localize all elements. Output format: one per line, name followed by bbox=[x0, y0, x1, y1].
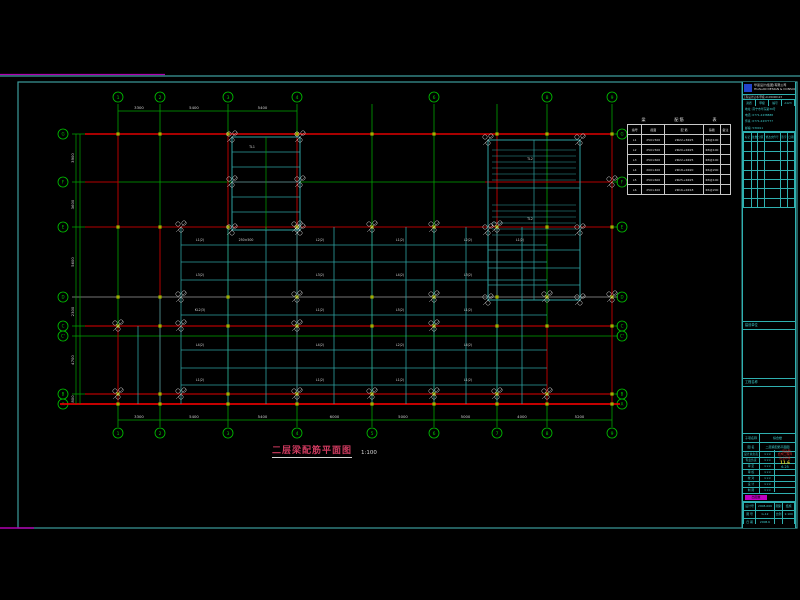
axis-bubble-label: 6 bbox=[433, 95, 436, 101]
revision-cell bbox=[787, 189, 794, 198]
project-label: 工程名称 bbox=[743, 379, 795, 387]
schedule-row: L5250×6002Φ25+4Φ25Φ8@100 bbox=[628, 175, 731, 185]
tb-signature-section: 子项名称综合楼图 名二层梁配筋平面图设计总负责×××专业负责×××审 定×××审… bbox=[743, 434, 795, 502]
tb-bottom-row: 图 号G-12比例1:100 bbox=[744, 510, 795, 518]
column-mark bbox=[610, 225, 613, 228]
axis-bubble-label: 2 bbox=[159, 431, 162, 437]
rebar-callout-circle bbox=[176, 321, 180, 325]
rebar-callout-circle bbox=[298, 291, 302, 295]
schedule-cell: 2Φ18+2Φ20 bbox=[665, 165, 704, 175]
rebar-callout-circle bbox=[581, 294, 585, 298]
schedule-cell: 250×600 bbox=[642, 175, 665, 185]
revision-cell bbox=[787, 142, 794, 151]
drawing-title-text: 二层梁配筋平面图 bbox=[272, 443, 352, 458]
schedule-title-part: 配 筋 bbox=[674, 117, 683, 122]
schedule-cell: L3 bbox=[628, 155, 642, 165]
schedule-body: 编号截面配 筋箍筋备注L1250×5002Φ22+3Φ25Φ8@100L2250… bbox=[628, 125, 731, 195]
schedule-cell: 200×400 bbox=[642, 165, 665, 175]
rebar-callout-circle bbox=[613, 176, 617, 180]
revision-cell bbox=[764, 179, 780, 188]
revision-cell bbox=[744, 189, 752, 198]
schedule-header-cell: 编号 bbox=[628, 125, 642, 135]
rebar-callout-circle bbox=[498, 388, 502, 392]
rebar-callout-circle bbox=[113, 321, 117, 325]
tb-revision-section: 标记处数分区修改文件号签字日期 bbox=[743, 132, 795, 208]
revision-cell bbox=[787, 179, 794, 188]
dim-text-left: 3600 bbox=[70, 199, 75, 209]
revision-cell bbox=[787, 161, 794, 170]
column-mark bbox=[495, 132, 498, 135]
schedule-row: L1250×5002Φ22+3Φ25Φ8@100 bbox=[628, 135, 731, 145]
revision-cell bbox=[744, 179, 752, 188]
column-mark bbox=[116, 402, 119, 405]
column-mark bbox=[545, 132, 548, 135]
axis-bubble-label: 2 bbox=[159, 95, 162, 101]
rebar-callout-circle bbox=[176, 292, 180, 296]
revision-cell bbox=[744, 142, 752, 151]
column-mark bbox=[370, 132, 373, 135]
revision-row bbox=[744, 151, 795, 160]
dim-text-bottom: 5000 bbox=[398, 414, 408, 419]
axis-bubble-label: B bbox=[62, 392, 65, 397]
column-mark bbox=[370, 295, 373, 298]
stamp-cyan-number: 6.25 bbox=[775, 465, 795, 469]
schedule-header-cell: 备注 bbox=[720, 125, 730, 135]
schedule-header-cell: 箍筋 bbox=[704, 125, 720, 135]
rebar-callout-circle bbox=[119, 388, 123, 392]
beam-tag: L1(2) bbox=[516, 238, 524, 242]
schedule-cell: 2Φ20+2Φ25 bbox=[665, 145, 704, 155]
schedule-cell bbox=[720, 145, 730, 155]
sub-row-label: 子项名称 bbox=[743, 434, 760, 442]
cad-viewport: 1122334456678899GGFFEEDDCCC'C'BBAAL1(2)2… bbox=[0, 0, 800, 600]
tb-bottom-cell bbox=[774, 518, 782, 524]
schedule-cell: 2Φ22+3Φ25 bbox=[665, 135, 704, 145]
name-row-label: 审 定 bbox=[743, 464, 760, 469]
column-mark bbox=[226, 392, 229, 395]
rebar-callout-circle bbox=[367, 222, 371, 226]
tb-bottom-cell: 1:100 bbox=[783, 510, 795, 518]
axis-bubble-label: 5 bbox=[371, 431, 374, 437]
column-mark bbox=[610, 132, 613, 135]
name-row-value: ××× bbox=[760, 482, 775, 487]
tb-stamp-box bbox=[743, 208, 795, 322]
schedule-cell: Φ8@100 bbox=[704, 155, 720, 165]
tb-bottom-row: 设计号2008-069图别结施 bbox=[744, 503, 795, 511]
tb-bottom-cell: 设计号 bbox=[744, 503, 756, 511]
schedule-row: L2250×5002Φ20+2Φ25Φ8@100 bbox=[628, 145, 731, 155]
rebar-callout-circle bbox=[119, 320, 123, 324]
axis-bubble-label: D bbox=[620, 295, 623, 300]
schedule-row: L3250×6002Φ22+4Φ25Φ8@100 bbox=[628, 155, 731, 165]
column-mark bbox=[610, 392, 613, 395]
beam-tag: TL2 bbox=[526, 217, 533, 221]
column-mark bbox=[158, 324, 161, 327]
name-row-value: ××× bbox=[760, 458, 775, 463]
revision-cell bbox=[764, 198, 780, 207]
axis-bubble-label: C' bbox=[61, 334, 65, 339]
revision-header-row: 标记处数分区修改文件号签字日期 bbox=[744, 133, 795, 142]
beam-tag: L2(2) bbox=[464, 238, 472, 242]
dim-text-bottom: 6000 bbox=[330, 414, 340, 419]
name-row-label: 审 核 bbox=[743, 470, 760, 475]
tb-bottom-row: 日 期2008.6 bbox=[744, 518, 795, 524]
column-mark bbox=[432, 132, 435, 135]
column-mark bbox=[495, 295, 498, 298]
axis-bubble-label: C bbox=[621, 324, 624, 329]
axis-bubble-label: B bbox=[621, 392, 624, 397]
schedule-cell: 250×600 bbox=[642, 155, 665, 165]
schedule-title: 梁配 筋表 bbox=[627, 117, 731, 122]
axis-bubble-label: 6 bbox=[433, 431, 436, 437]
rebar-callout-circle bbox=[548, 388, 552, 392]
rebar-callout-circle bbox=[542, 389, 546, 393]
axis-bubble-label: D bbox=[61, 295, 64, 300]
tb-project-section: 工程名称 bbox=[743, 379, 795, 434]
column-mark bbox=[545, 324, 548, 327]
axis-bubble-label: C bbox=[62, 324, 65, 329]
schedule-cell: 250×500 bbox=[642, 135, 665, 145]
column-mark bbox=[116, 225, 119, 228]
rebar-callout-circle bbox=[233, 176, 237, 180]
axis-bubble-label: 4 bbox=[296, 95, 299, 101]
revision-table-body: 标记处数分区修改文件号签字日期 bbox=[744, 133, 795, 208]
rebar-callout-circle bbox=[435, 291, 439, 295]
beam-tag: L1(2) bbox=[316, 378, 324, 382]
axis-bubble-label: 9 bbox=[611, 95, 614, 101]
rebar-callout-circle bbox=[373, 388, 377, 392]
revision-cell bbox=[764, 151, 780, 160]
revision-cell bbox=[780, 198, 787, 207]
name-row-value: ××× bbox=[760, 476, 775, 481]
beam-tag: L4(2) bbox=[396, 273, 404, 277]
tb-cell: A123 bbox=[782, 100, 795, 106]
rebar-callout-circle bbox=[292, 389, 296, 393]
dim-text-top: 5400 bbox=[189, 105, 199, 110]
axis-bubble-label: E bbox=[62, 225, 65, 230]
revision-row bbox=[744, 161, 795, 170]
column-mark bbox=[226, 324, 229, 327]
beam-schedule-table: 梁配 筋表 编号截面配 筋箍筋备注L1250×5002Φ22+3Φ25Φ8@10… bbox=[627, 117, 731, 195]
dim-text-left: 800 bbox=[70, 395, 75, 403]
rebar-callout-circle bbox=[489, 294, 493, 298]
sub-row-label: 图 名 bbox=[743, 443, 760, 451]
tb-logo-section: 华蓝设计(集团)有限公司HUALAN DESIGN & CONSULTING G… bbox=[743, 82, 795, 95]
rebar-callout-circle bbox=[548, 291, 552, 295]
column-mark bbox=[610, 324, 613, 327]
schedule-cell: L5 bbox=[628, 175, 642, 185]
revision-cell bbox=[764, 170, 780, 179]
axis-bubble-label: 8 bbox=[546, 431, 549, 437]
dim-text-bottom: 5400 bbox=[189, 414, 199, 419]
axis-bubble-label: 1 bbox=[117, 95, 120, 101]
company-logo-icon bbox=[744, 84, 752, 92]
name-row-value: ××× bbox=[760, 470, 775, 475]
rebar-callout-circle bbox=[575, 135, 579, 139]
name-row-value: ××× bbox=[760, 452, 775, 457]
tb-bottom-cell: 比例 bbox=[774, 510, 782, 518]
beam-tag: L1(2) bbox=[396, 238, 404, 242]
column-mark bbox=[295, 132, 298, 135]
name-row-label: 校 对 bbox=[743, 476, 760, 481]
rebar-callout-circle bbox=[435, 388, 439, 392]
tb-stamp-column: 一级注册结构工程师执业印章11.66.25 bbox=[774, 450, 795, 492]
drawing-title: 二层梁配筋平面图 1:100 bbox=[272, 443, 377, 458]
schedule-cell: L1 bbox=[628, 135, 642, 145]
column-mark bbox=[116, 132, 119, 135]
beam-tag: L2(2) bbox=[396, 343, 404, 347]
schedule-cell: Φ8@100 bbox=[704, 135, 720, 145]
schedule-cell: Φ8@100 bbox=[704, 175, 720, 185]
column-mark bbox=[158, 132, 161, 135]
tb-bottom-cell: 结施 bbox=[783, 503, 795, 511]
column-mark bbox=[370, 324, 373, 327]
column-mark bbox=[158, 295, 161, 298]
axis-bubble-label: F bbox=[621, 180, 624, 185]
rebar-callout-circle bbox=[182, 388, 186, 392]
drawing-scale: 1:100 bbox=[361, 450, 377, 458]
axis-bubble-label: 9 bbox=[611, 431, 614, 437]
axis-bubble-label: E bbox=[621, 225, 624, 230]
axis-bubble-label: 3 bbox=[227, 95, 230, 101]
rebar-callout-circle bbox=[301, 176, 305, 180]
rebar-callout-circle bbox=[483, 135, 487, 139]
rebar-callout-circle bbox=[429, 321, 433, 325]
schedule-cell: Φ6@200 bbox=[704, 185, 720, 195]
column-mark bbox=[495, 402, 498, 405]
dim-text-top: 5400 bbox=[258, 105, 268, 110]
schedule-cell: Φ6@200 bbox=[704, 165, 720, 175]
address-line: 邮编: 530011 bbox=[743, 125, 795, 131]
beam-tag: L3(2) bbox=[196, 273, 204, 277]
rebar-callout-circle bbox=[182, 320, 186, 324]
beam-tag: 250×500 bbox=[239, 238, 254, 242]
sub-row: 子项名称综合楼 bbox=[743, 434, 795, 443]
revision-cell bbox=[764, 189, 780, 198]
beam-tag: L4(2) bbox=[316, 343, 324, 347]
column-mark bbox=[432, 402, 435, 405]
dim-text-bottom: 5200 bbox=[575, 414, 585, 419]
revision-cell bbox=[744, 170, 752, 179]
revision-header-cell: 签字 bbox=[780, 133, 787, 142]
axis-bubble-label: G bbox=[620, 132, 623, 137]
column-mark bbox=[545, 225, 548, 228]
beam-tag: TL1 bbox=[248, 145, 255, 149]
revision-cell bbox=[787, 151, 794, 160]
schedule-cell bbox=[720, 155, 730, 165]
axis-bubble-label: 1 bbox=[117, 431, 120, 437]
schedule-cell bbox=[720, 165, 730, 175]
revision-cell bbox=[780, 142, 787, 151]
revision-row bbox=[744, 189, 795, 198]
axis-bubble-label: 7 bbox=[496, 431, 499, 437]
schedule-header-cell: 截面 bbox=[642, 125, 665, 135]
schedule-cell: 2Φ22+4Φ25 bbox=[665, 155, 704, 165]
axis-bubble-label: A bbox=[621, 402, 624, 407]
column-mark bbox=[158, 402, 161, 405]
rebar-callout-circle bbox=[429, 292, 433, 296]
tb-bottom-cell: G-12 bbox=[756, 510, 775, 518]
rebar-callout-circle bbox=[227, 177, 231, 181]
plot-stamp-cell: 出图章 bbox=[745, 495, 767, 500]
beam-tag: L5(2) bbox=[396, 308, 404, 312]
axis-bubble-label: 8 bbox=[546, 95, 549, 101]
axis-bubble-label: C' bbox=[620, 334, 624, 339]
beam-tag: L1(2) bbox=[396, 378, 404, 382]
beam-tag: TL2 bbox=[526, 157, 533, 161]
cad-canvas[interactable]: 1122334456678899GGFFEEDDCCC'C'BBAAL1(2)2… bbox=[0, 0, 800, 600]
rebar-callout-circle bbox=[435, 221, 439, 225]
beam-tag: L1(2) bbox=[196, 238, 204, 242]
dim-text-top: 3300 bbox=[134, 105, 144, 110]
tb-bottom-cell: 图 号 bbox=[744, 510, 756, 518]
rebar-callout-circle bbox=[613, 291, 617, 295]
name-row-label: 制 图 bbox=[743, 488, 760, 493]
rebar-callout-circle bbox=[429, 222, 433, 226]
rebar-callout-circle bbox=[233, 224, 237, 228]
rebar-callout-circle bbox=[489, 224, 493, 228]
schedule-cell: 250×500 bbox=[642, 145, 665, 155]
rebar-callout-circle bbox=[607, 292, 611, 296]
schedule-grid: 编号截面配 筋箍筋备注L1250×5002Φ22+3Φ25Φ8@100L2250… bbox=[627, 124, 731, 195]
tb-owner-section: 建设单位 bbox=[743, 322, 795, 379]
revision-cell bbox=[764, 161, 780, 170]
name-row-value: ××× bbox=[760, 488, 775, 493]
rebar-callout-circle bbox=[581, 224, 585, 228]
revision-cell bbox=[764, 142, 780, 151]
rebar-callout-circle bbox=[292, 292, 296, 296]
axis-bubble-label: F bbox=[62, 180, 65, 185]
revision-row bbox=[744, 179, 795, 188]
tb-bottom-table: 设计号2008-069图别结施图 号G-12比例1:100日 期2008.6 bbox=[743, 502, 795, 524]
column-mark bbox=[158, 225, 161, 228]
schedule-cell: L6 bbox=[628, 185, 642, 195]
revision-cell bbox=[744, 151, 752, 160]
column-mark bbox=[610, 402, 613, 405]
tb-bottom-cell: 日 期 bbox=[744, 518, 756, 524]
rebar-callout-circle bbox=[292, 222, 296, 226]
revision-header-cell: 日期 bbox=[787, 133, 794, 142]
revision-cell bbox=[787, 170, 794, 179]
name-row-label: 设 计 bbox=[743, 482, 760, 487]
revision-cell bbox=[744, 161, 752, 170]
schedule-cell bbox=[720, 175, 730, 185]
revision-cell bbox=[744, 198, 752, 207]
rebar-callout-circle bbox=[367, 389, 371, 393]
tb-bottom-cell: 2008.6 bbox=[756, 518, 775, 524]
rebar-callout-circle bbox=[429, 389, 433, 393]
dim-text-left: 5600 bbox=[70, 257, 75, 267]
schedule-cell: 2Φ25+4Φ25 bbox=[665, 175, 704, 185]
name-row-value: ××× bbox=[760, 464, 775, 469]
column-mark bbox=[495, 324, 498, 327]
schedule-cell: 250×400 bbox=[642, 185, 665, 195]
rebar-callout-circle bbox=[113, 389, 117, 393]
revision-row bbox=[744, 198, 795, 207]
axis-bubble-label: 3 bbox=[227, 431, 230, 437]
rebar-callout-circle bbox=[298, 320, 302, 324]
schedule-title-part: 表 bbox=[713, 117, 717, 122]
revision-cell bbox=[780, 151, 787, 160]
dim-text-bottom: 5000 bbox=[461, 414, 471, 419]
name-row-label: 设计总负责 bbox=[743, 452, 760, 457]
beam-tag: L1(2) bbox=[464, 378, 472, 382]
schedule-row: L6250×4002Φ16+2Φ18Φ6@200 bbox=[628, 185, 731, 195]
beam-tag: L2(2) bbox=[316, 238, 324, 242]
schedule-row: L4200×4002Φ18+2Φ20Φ6@200 bbox=[628, 165, 731, 175]
beam-tag: L1(2) bbox=[464, 308, 472, 312]
rebar-callout-circle bbox=[182, 291, 186, 295]
dim-text-bottom: 5400 bbox=[258, 414, 268, 419]
column-mark bbox=[116, 295, 119, 298]
schedule-cell bbox=[720, 135, 730, 145]
revision-table: 标记处数分区修改文件号签字日期 bbox=[743, 132, 795, 208]
rebar-callout-circle bbox=[176, 389, 180, 393]
revision-header-cell: 修改文件号 bbox=[764, 133, 780, 142]
axis-bubble-label: 4 bbox=[296, 431, 299, 437]
schedule-cell: Φ8@100 bbox=[704, 145, 720, 155]
beam-tag: L1(2) bbox=[196, 378, 204, 382]
company-name-en: HUALAN DESIGN & CONSULTING GROUP bbox=[754, 88, 795, 92]
column-mark bbox=[545, 402, 548, 405]
revision-cell bbox=[780, 170, 787, 179]
title-block: 华蓝设计(集团)有限公司HUALAN DESIGN & CONSULTING G… bbox=[742, 82, 796, 528]
dim-text-left: 3900 bbox=[70, 153, 75, 163]
rebar-callout-circle bbox=[292, 321, 296, 325]
axis-bubble-label: G bbox=[61, 132, 64, 137]
dim-text-bottom: 3300 bbox=[134, 414, 144, 419]
revision-cell bbox=[787, 198, 794, 207]
column-mark bbox=[226, 295, 229, 298]
schedule-cell: L2 bbox=[628, 145, 642, 155]
beam-tag: L4(2) bbox=[464, 343, 472, 347]
rebar-callout-circle bbox=[607, 177, 611, 181]
sub-row-value: 综合楼 bbox=[760, 434, 795, 442]
beam-tag: L4(2) bbox=[196, 343, 204, 347]
beam-tag: L3(2) bbox=[316, 273, 324, 277]
column-mark bbox=[295, 402, 298, 405]
tb-bottom-table-body: 设计号2008-069图别结施图 号G-12比例1:100日 期2008.6 bbox=[744, 503, 795, 525]
schedule-cell: 2Φ16+2Φ18 bbox=[665, 185, 704, 195]
tb-bottom-section: 设计号2008-069图别结施图 号G-12比例1:100日 期2008.6 bbox=[743, 502, 795, 524]
owner-label: 建设单位 bbox=[743, 322, 795, 330]
rebar-callout-circle bbox=[182, 221, 186, 225]
rebar-callout-circle bbox=[542, 292, 546, 296]
tb-company-wrap: 华蓝设计(集团)有限公司HUALAN DESIGN & CONSULTING G… bbox=[754, 84, 795, 91]
schedule-cell: L4 bbox=[628, 165, 642, 175]
tb-bottom-cell: 2008-069 bbox=[756, 503, 775, 511]
revision-cell bbox=[780, 179, 787, 188]
dim-text-left: 4700 bbox=[70, 355, 75, 365]
rebar-callout-circle bbox=[435, 320, 439, 324]
name-row-label: 专业负责 bbox=[743, 458, 760, 463]
revision-row bbox=[744, 170, 795, 179]
tb-bottom-cell bbox=[783, 518, 795, 524]
schedule-title-part: 梁 bbox=[641, 117, 645, 122]
tb-address-section: 资质甲级编号A123地址: 南宁市华东路39号电话: 0771-2438888传… bbox=[743, 100, 795, 132]
beam-tag: L3(2) bbox=[464, 273, 472, 277]
dim-text-bottom: 4000 bbox=[517, 414, 527, 419]
column-mark bbox=[158, 392, 161, 395]
rebar-callout-circle bbox=[373, 221, 377, 225]
rebar-callout-circle bbox=[176, 222, 180, 226]
rebar-callout-circle bbox=[492, 389, 496, 393]
column-mark bbox=[226, 402, 229, 405]
schedule-header-row: 编号截面配 筋箍筋备注 bbox=[628, 125, 731, 135]
schedule-cell bbox=[720, 185, 730, 195]
dim-text-left: 2300 bbox=[70, 306, 75, 316]
beam-tag: KL2(3) bbox=[195, 308, 205, 312]
